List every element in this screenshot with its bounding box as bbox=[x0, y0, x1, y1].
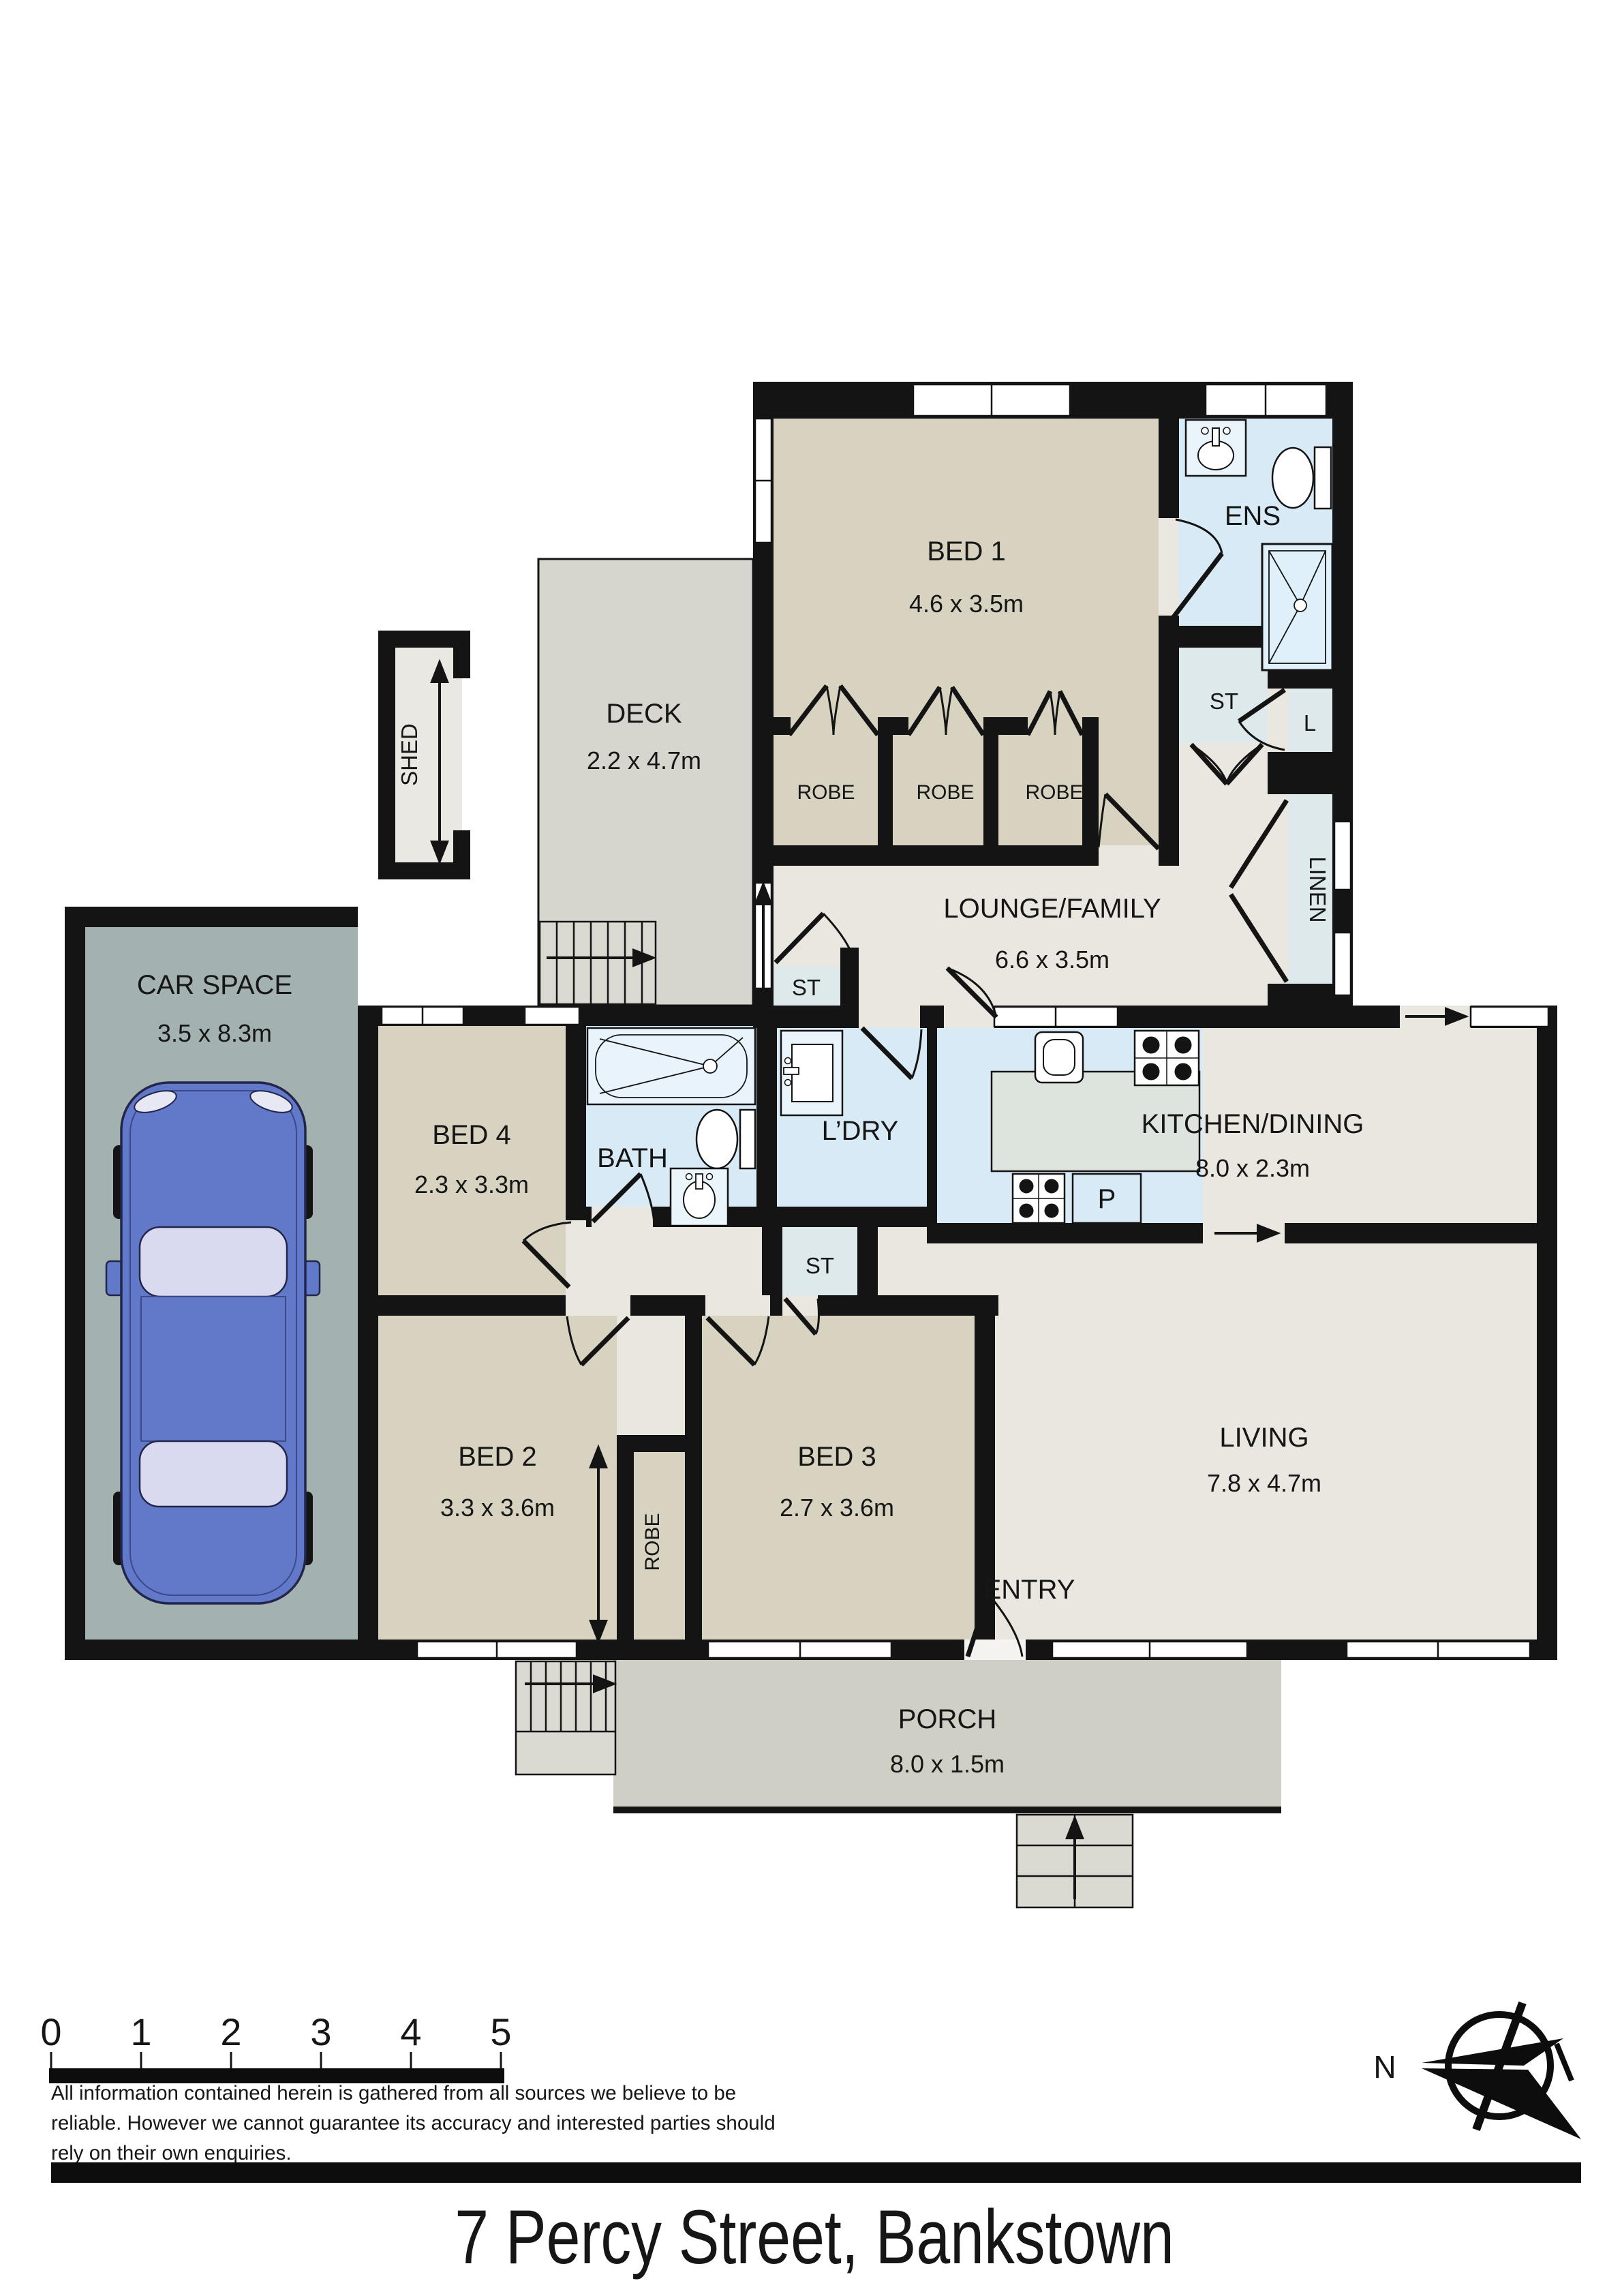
pantry-label: P bbox=[1098, 1184, 1116, 1214]
ens-label: ENS bbox=[1225, 501, 1281, 531]
porch-dims: 8.0 x 1.5m bbox=[890, 1750, 1005, 1778]
car-space-label: CAR SPACE bbox=[137, 970, 292, 1000]
porch-room bbox=[613, 1660, 1281, 1809]
bath-label: BATH bbox=[597, 1143, 668, 1173]
scale-tick-3: 3 bbox=[310, 2010, 331, 2053]
disclaimer-line3: rely on their own enquiries. bbox=[51, 2142, 292, 2164]
disclaimer-line2: reliable. However we cannot guarantee it… bbox=[51, 2112, 776, 2134]
bed3-room bbox=[702, 1316, 975, 1642]
bed1-dims: 4.6 x 3.5m bbox=[909, 590, 1024, 618]
laundry-tub bbox=[781, 1031, 842, 1115]
living-dims: 7.8 x 4.7m bbox=[1207, 1469, 1321, 1497]
car bbox=[106, 1083, 320, 1603]
st-ens-label: ST bbox=[1210, 689, 1238, 714]
compass: N bbox=[1373, 2003, 1581, 2139]
shed-label: SHED bbox=[397, 723, 422, 786]
bath-sink bbox=[671, 1168, 728, 1226]
ens-shower bbox=[1262, 544, 1332, 670]
bed1-label: BED 1 bbox=[927, 537, 1006, 567]
car-rear-window bbox=[140, 1441, 287, 1507]
deck-label: DECK bbox=[606, 699, 682, 729]
compass-needle-bottom bbox=[1422, 2068, 1581, 2139]
bath-toilet bbox=[697, 1110, 755, 1168]
scale-tick-0: 0 bbox=[40, 2010, 61, 2053]
kitchen-label: KITCHEN/DINING bbox=[1142, 1109, 1364, 1139]
ens-toilet bbox=[1272, 447, 1331, 509]
robe2-label: ROBE bbox=[916, 781, 974, 804]
bed3-label: BED 3 bbox=[797, 1442, 876, 1472]
footer-divider bbox=[51, 2162, 1581, 2183]
scale-tick-1: 1 bbox=[130, 2010, 151, 2053]
st-hall-label: ST bbox=[806, 1253, 834, 1278]
deck-dims: 2.2 x 4.7m bbox=[587, 746, 701, 774]
robe-strip-label: ROBE bbox=[641, 1513, 664, 1571]
lounge-label: LOUNGE/FAMILY bbox=[943, 894, 1161, 924]
robe3-label: ROBE bbox=[1025, 781, 1083, 804]
kitchen-cooktop-2 bbox=[1013, 1174, 1065, 1223]
kitchen-sink bbox=[1035, 1032, 1083, 1083]
bed4-dims: 2.3 x 3.3m bbox=[414, 1170, 529, 1198]
entry-label: ENTRY bbox=[983, 1575, 1075, 1605]
bathtub bbox=[587, 1028, 755, 1104]
north-label: N bbox=[1373, 2049, 1396, 2085]
linen-label: LINEN bbox=[1305, 856, 1330, 922]
scale-tick-5: 5 bbox=[490, 2010, 511, 2053]
scale-tick-4: 4 bbox=[400, 2010, 421, 2053]
floorplan-page: BED 1 4.6 x 3.5m ENS ST L LINEN ROBE ROB… bbox=[0, 0, 1622, 2296]
car-windshield bbox=[140, 1227, 287, 1297]
laundry-label: L’DRY bbox=[822, 1116, 899, 1146]
bed3-dims: 2.7 x 3.6m bbox=[780, 1494, 894, 1522]
scale-bar: 0 1 2 3 4 5 bbox=[40, 2010, 511, 2083]
robe1-label: ROBE bbox=[797, 781, 855, 804]
ens-sink bbox=[1186, 420, 1246, 476]
car-space-dims: 3.5 x 8.3m bbox=[157, 1019, 272, 1047]
l-closet-label: L bbox=[1304, 710, 1316, 736]
car-roof bbox=[141, 1297, 286, 1441]
bed2-label: BED 2 bbox=[458, 1442, 537, 1472]
floorplan-svg: BED 1 4.6 x 3.5m ENS ST L LINEN ROBE ROB… bbox=[0, 0, 1622, 2296]
st-lounge-label: ST bbox=[792, 975, 821, 1000]
kitchen-cooktop bbox=[1135, 1031, 1199, 1085]
disclaimer: All information contained herein is gath… bbox=[51, 2082, 776, 2164]
address-title: 7 Percy Street, Bankstown bbox=[455, 2195, 1174, 2280]
lounge-dims: 6.6 x 3.5m bbox=[995, 946, 1110, 973]
scale-tick-2: 2 bbox=[220, 2010, 241, 2053]
kitchen-dims: 8.0 x 2.3m bbox=[1195, 1154, 1310, 1182]
compass-needle-top bbox=[1422, 2038, 1563, 2066]
disclaimer-line1: All information contained herein is gath… bbox=[51, 2082, 736, 2104]
bed2-dims: 3.3 x 3.6m bbox=[440, 1494, 555, 1522]
porch-label: PORCH bbox=[898, 1704, 996, 1734]
bed4-label: BED 4 bbox=[432, 1120, 511, 1150]
address-title-group: 7 Percy Street, Bankstown bbox=[455, 2195, 1174, 2280]
living-label: LIVING bbox=[1219, 1423, 1309, 1453]
